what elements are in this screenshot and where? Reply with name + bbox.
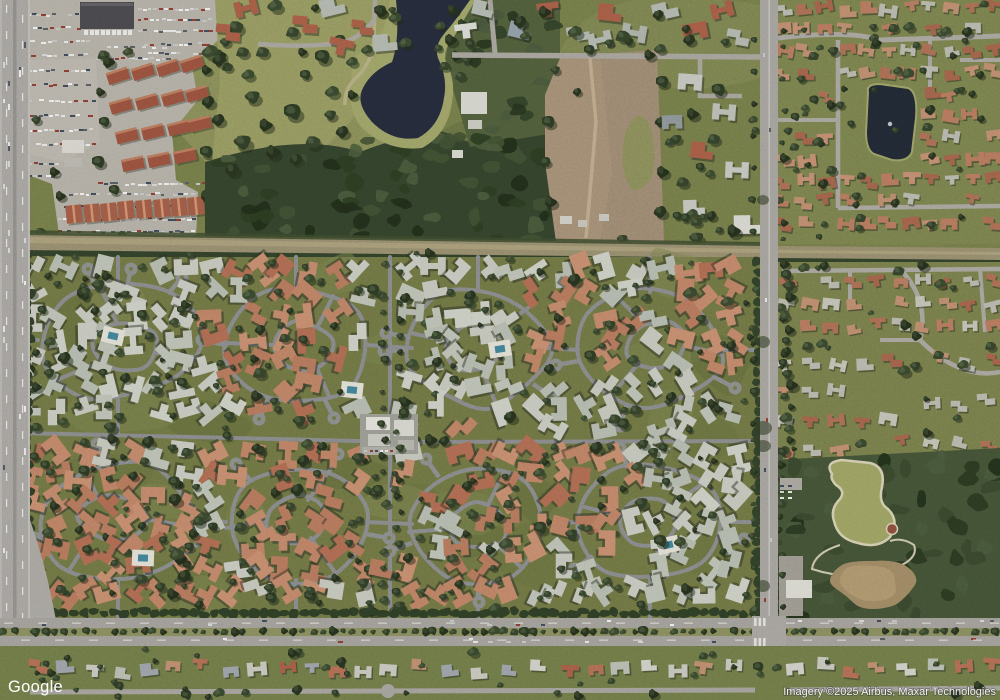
svg-text:Google: Google xyxy=(8,678,63,696)
svg-text:Imagery ©2025 Airbus, Maxar Te: Imagery ©2025 Airbus, Maxar Technologies xyxy=(783,686,996,698)
